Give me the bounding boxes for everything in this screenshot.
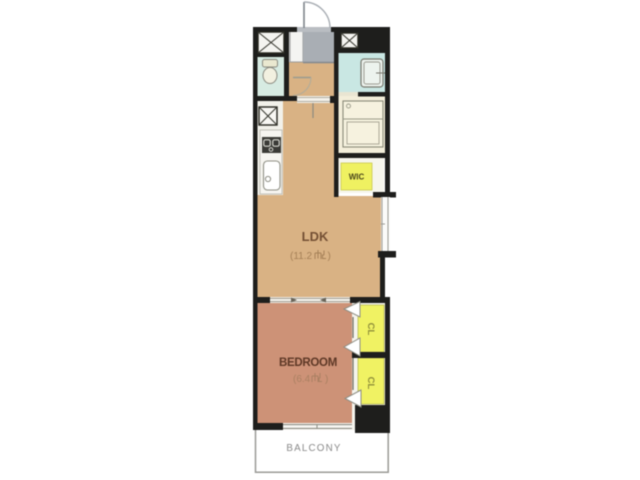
svg-text:BEDROOM: BEDROOM [279, 357, 337, 369]
svg-text:(6.4: (6.4 [293, 374, 311, 385]
svg-text:CL: CL [365, 323, 376, 336]
svg-text:CL: CL [365, 377, 376, 390]
svg-text:): ) [328, 251, 331, 262]
svg-text:LDK: LDK [302, 229, 329, 244]
svg-text:WIC: WIC [349, 173, 365, 182]
svg-text:): ) [325, 374, 328, 385]
svg-text:(11.2: (11.2 [290, 251, 312, 262]
svg-text:BALCONY: BALCONY [286, 443, 341, 454]
